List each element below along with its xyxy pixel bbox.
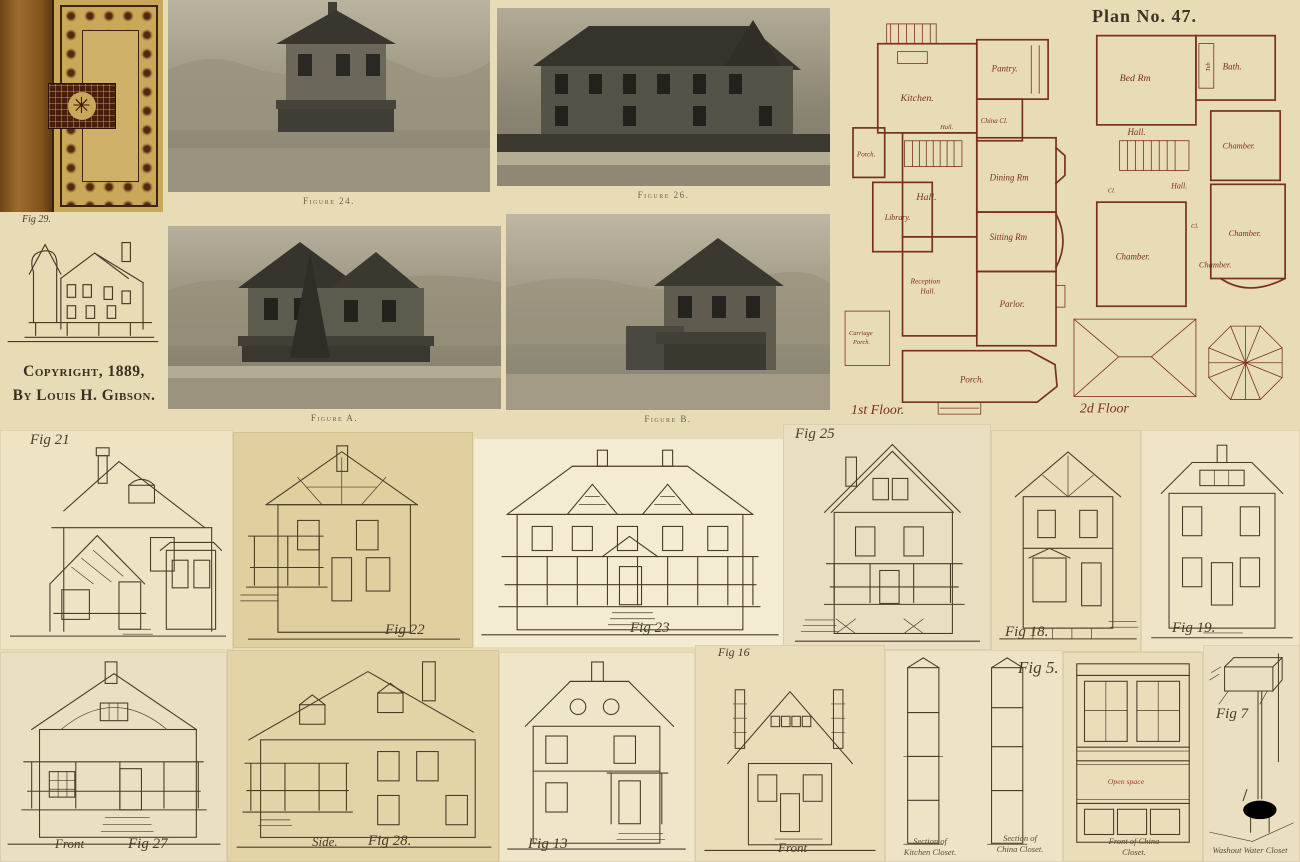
fig-27-label: Fig 27: [128, 836, 168, 853]
fig-25-label: Fig 25: [795, 426, 835, 443]
figure-24-caption: Figure 24.: [168, 196, 490, 206]
second-floor-plan-drawing: Bed Rm Bath. Tub Hall. Hall. Cl. Cl. Cha…: [1072, 22, 1300, 422]
room-label-reception-2: Hall.: [919, 286, 935, 295]
fig-28-label: Fig 28.: [368, 833, 411, 850]
room-label-tub: Tub: [1206, 62, 1212, 71]
fig-18-elevation-drawing: [994, 436, 1142, 646]
book-cover: ✳: [0, 0, 163, 212]
room-label-kitchen: Kitchen.: [900, 93, 934, 104]
room-label-pantry: Pantry.: [991, 63, 1018, 73]
room-label-reception-1: Reception: [909, 276, 940, 285]
kitchen-closet-section-caption: Section of Kitchen Closet.: [885, 836, 975, 857]
fig-16-label: Fig 16: [718, 645, 750, 660]
china-closet-front-caption: Front of China Closet.: [1070, 836, 1198, 857]
fig-23-elevation-drawing: [477, 444, 783, 640]
figure-24-photo-image: [168, 0, 490, 192]
fig-5-label: Fig 5.: [1018, 658, 1059, 678]
fig-28-elevation-drawing: [231, 654, 497, 854]
fig-16-view-label: Front: [778, 840, 807, 856]
figure-b-caption: Figure B.: [506, 414, 830, 424]
figure-26-caption: Figure 26.: [497, 190, 830, 200]
water-closet-caption: Washout Water Closet: [1200, 845, 1300, 856]
fig-22-elevation-drawing: [238, 438, 470, 646]
china-closet-front-drawing: Open space: [1066, 658, 1200, 850]
room-label-closet-1: Cl.: [1108, 187, 1116, 194]
fig-23-label: Fig 23: [630, 620, 670, 637]
fig-7-label: Fig 7: [1216, 706, 1248, 723]
fig-16-elevation-drawing: [698, 652, 882, 858]
figure-a-photo-image: [168, 226, 501, 409]
room-label-chamber-1: Chamber.: [1116, 252, 1150, 262]
fig-21-elevation-drawing: [2, 434, 232, 646]
fig-13-elevation-drawing: [502, 656, 692, 856]
first-floor-plan-drawing: Porch. Kitchen. Pantry. China Cl. Hall. …: [843, 14, 1071, 424]
room-label-chamber-3: Chamber.: [1229, 228, 1261, 238]
copyright-block: Copyright, 1889, By Louis H. Gibson.: [0, 360, 168, 408]
room-label-closet-2: Cl.: [1191, 223, 1199, 230]
room-label-porch-side: Porch.: [856, 152, 876, 159]
room-label-hall-back: Hall.: [939, 124, 953, 131]
fig-21-label: Fig 21: [30, 432, 70, 449]
figure-26-photo-image: [497, 8, 830, 186]
room-label-carriage-2: Porch.: [852, 339, 870, 346]
figure-a-photo: [168, 226, 501, 409]
figure-b-photo-image: [506, 214, 830, 410]
fig-29-label: Fig 29.: [22, 214, 51, 225]
room-label-china-closet: China Cl.: [981, 118, 1008, 125]
room-label-carriage-1: Carriage: [849, 330, 873, 337]
second-floor-label: 2d Floor: [1080, 401, 1130, 416]
fig-18-label: Fig 18.: [1005, 624, 1048, 641]
figure-a-caption: Figure A.: [168, 413, 501, 423]
fig-27-view-label: Front: [55, 836, 84, 852]
room-label-chamber-4: Chamber.: [1199, 260, 1231, 270]
fig-7-water-closet-drawing: [1206, 650, 1297, 850]
room-label-bath: Bath.: [1223, 61, 1242, 71]
copyright-line-2: By Louis H. Gibson.: [0, 384, 168, 408]
fig-25-elevation-drawing: [786, 430, 988, 648]
fig-13-label: Fig 13: [528, 836, 568, 853]
fig-19-elevation-drawing: [1144, 436, 1300, 646]
room-label-library: Library.: [884, 213, 911, 222]
book-spine: [0, 0, 52, 212]
room-label-bed: Bed Rm: [1120, 73, 1151, 84]
room-label-hall-lower: Hall.: [1170, 181, 1187, 190]
figure-b-photo: [506, 214, 830, 410]
fig-19-label: Fig 19.: [1172, 620, 1215, 637]
figure-26-photo: [497, 8, 830, 186]
fig-27-elevation-drawing: [2, 656, 226, 852]
cover-medallion: ✳: [48, 83, 116, 129]
room-label-dining: Dining Rm: [989, 172, 1029, 182]
figure-24-photo: [168, 0, 490, 192]
room-label-chamber-2: Chamber.: [1223, 141, 1255, 151]
room-label-porch-front: Porch.: [959, 374, 984, 384]
room-label-hall-main: Hall.: [915, 192, 936, 203]
room-label-sitting: Sitting Rm: [990, 232, 1028, 242]
fig-29-house-sketch: [4, 230, 162, 352]
copyright-line-1: Copyright, 1889,: [0, 360, 168, 384]
room-label-hall-upper: Hall.: [1127, 127, 1146, 137]
china-closet-section-caption: Section of China Closet.: [975, 833, 1065, 854]
room-label-parlor: Parlor.: [999, 299, 1025, 309]
china-closet-open-space-label: Open space: [1108, 777, 1145, 786]
fig-5-sections-drawing: [888, 654, 1060, 854]
fig-22-label: Fig 22: [385, 622, 425, 639]
first-floor-label: 1st Floor.: [851, 402, 904, 417]
pinwheel-icon: ✳: [68, 92, 96, 120]
fig-28-view-label: Side.: [312, 834, 338, 850]
scanned-collage-page: ✳ Fig 29. Copyright, 1889, By Louis H. G…: [0, 0, 1300, 862]
